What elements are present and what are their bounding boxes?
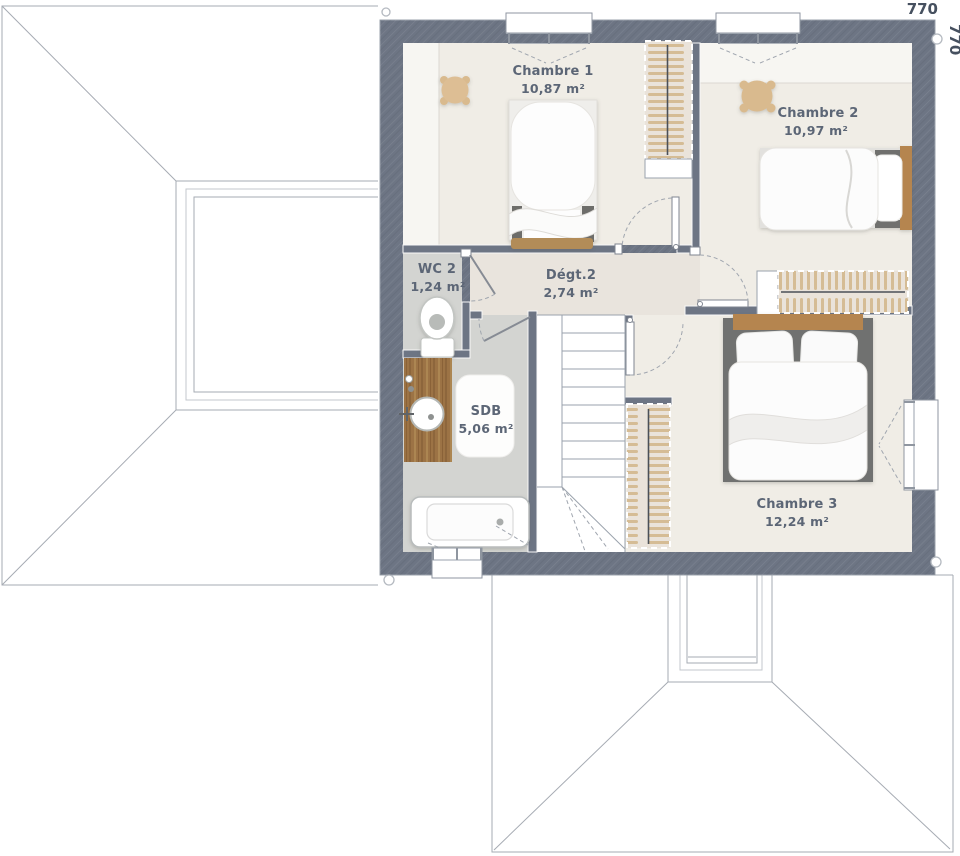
wall-sdb-top-left bbox=[470, 311, 482, 319]
room-label-chambre1: Chambre 1 bbox=[512, 64, 593, 79]
sink-drain bbox=[428, 414, 434, 420]
dimension-label-right: 770 bbox=[946, 24, 960, 55]
room-label-chambre2: Chambre 2 bbox=[777, 106, 858, 121]
marker-circle bbox=[932, 34, 942, 44]
room-label-sdb: SDB bbox=[471, 404, 502, 419]
stool-chambre1 bbox=[440, 76, 470, 105]
headboard bbox=[733, 314, 863, 330]
soap-dish bbox=[406, 376, 413, 383]
toilet bbox=[420, 297, 454, 357]
sink-basin bbox=[411, 398, 444, 431]
floor-chambre-2-low-ceiling bbox=[700, 43, 912, 83]
window-sdb-bottom bbox=[432, 548, 482, 578]
tub-drain bbox=[497, 519, 504, 526]
floor-plan-page: Chambre 1 10,87 m² Chambre 2 10,97 m² WC… bbox=[0, 0, 960, 856]
marker-circle bbox=[382, 8, 390, 16]
door-jamb bbox=[690, 247, 700, 255]
window-chambre3-right bbox=[904, 400, 938, 490]
stool-chambre2 bbox=[740, 81, 776, 113]
room-area-chambre1: 10,87 m² bbox=[521, 81, 585, 96]
wardrobe-chambre1 bbox=[645, 41, 692, 178]
room-label-wc2: WC 2 bbox=[418, 262, 456, 277]
room-label-chambre3: Chambre 3 bbox=[756, 497, 837, 512]
roof-left bbox=[2, 6, 378, 585]
bed-bench bbox=[511, 238, 593, 249]
dimension-label-top: 770 bbox=[907, 0, 938, 18]
floor-plan: Chambre 1 10,87 m² Chambre 2 10,97 m² WC… bbox=[0, 0, 960, 856]
vanity-sink bbox=[399, 358, 452, 462]
roof-bottom-surface bbox=[492, 575, 953, 852]
room-area-chambre3: 12,24 m² bbox=[765, 514, 829, 529]
door-jamb bbox=[615, 244, 622, 254]
drain-dot bbox=[408, 386, 414, 392]
floor-degagement bbox=[470, 253, 700, 315]
bathtub bbox=[411, 497, 529, 547]
marker-circle bbox=[931, 557, 941, 567]
wall-wc-right bbox=[462, 302, 470, 350]
bed-double-chambre3 bbox=[723, 314, 873, 482]
bed-single-chambre1 bbox=[509, 100, 597, 249]
room-area-sdb: 5,06 m² bbox=[458, 421, 513, 436]
wardrobe-chambre3 bbox=[627, 404, 670, 548]
shelf-niche bbox=[757, 271, 778, 315]
room-area-wc2: 1,24 m² bbox=[410, 279, 465, 294]
room-area-degt2: 2,74 m² bbox=[543, 285, 598, 300]
room-area-chambre2: 10,97 m² bbox=[784, 123, 848, 138]
building bbox=[380, 8, 942, 585]
floor-chambre-1-low-ceiling bbox=[403, 43, 439, 245]
wardrobe-chambre2 bbox=[757, 271, 908, 315]
wall-chambre1-chambre2 bbox=[692, 43, 700, 255]
marker-circle bbox=[384, 575, 394, 585]
shelf-niche bbox=[645, 159, 692, 178]
room-label-degt2: Dégt.2 bbox=[546, 268, 596, 283]
bed-double-chambre2 bbox=[760, 146, 912, 230]
roof-left-surface bbox=[2, 6, 378, 585]
roof-bottom bbox=[492, 575, 953, 852]
